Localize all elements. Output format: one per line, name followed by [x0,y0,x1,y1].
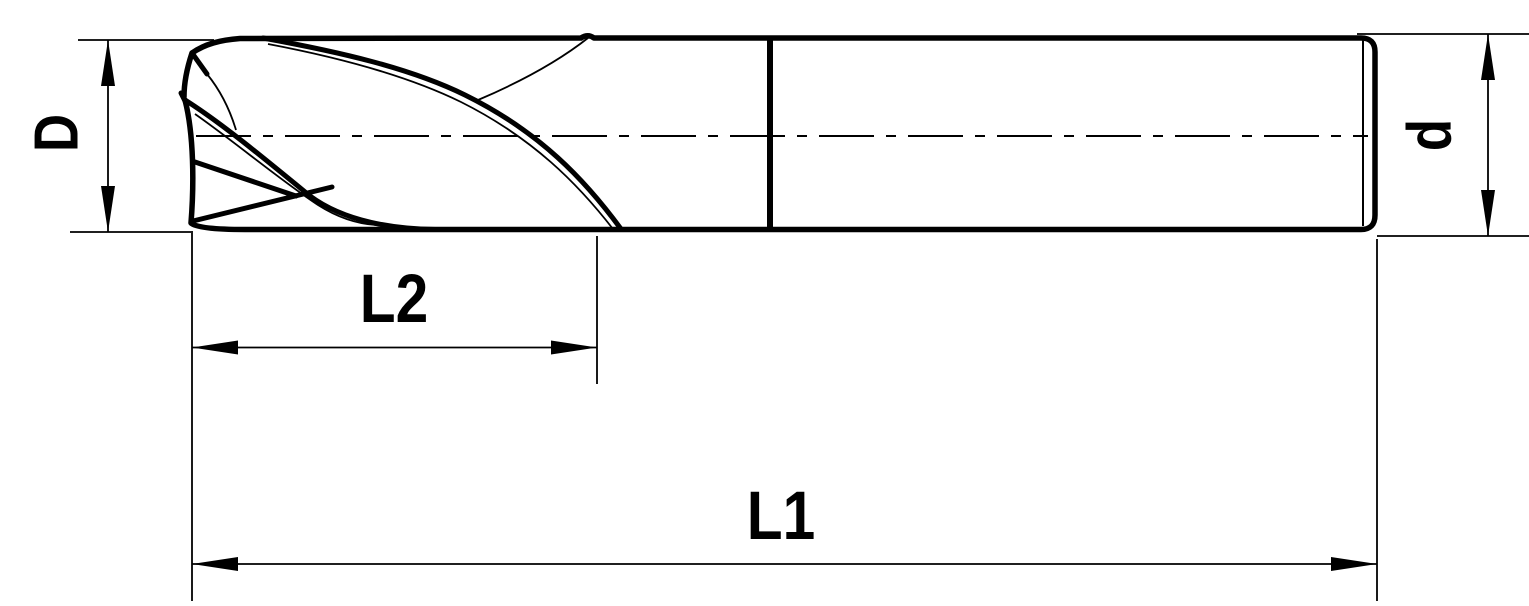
arrowhead [192,341,238,355]
arrowhead [101,40,115,86]
arrowhead [551,341,597,355]
tooth-face-line [207,74,236,130]
tip-gash-line [192,53,207,74]
end-face-lower-edge [185,100,193,223]
flute2-edge [185,100,435,230]
arrowhead [1331,557,1377,571]
flute-runout-curve [478,38,588,100]
end-face-upper-edge [184,53,192,97]
end-mill-drawing: D d L2 L1 [0,0,1529,606]
shank-diameter-label: d [1396,119,1465,151]
dimension-L2: L2 [192,231,597,601]
arrowhead [192,557,238,571]
shank-outline [770,38,1375,230]
arrowhead [101,186,115,232]
shank [770,38,1375,230]
end-tooth-gash-lower [193,187,332,221]
flute-bottom-edge [191,223,770,230]
tool-body [181,36,1375,233]
cutter-diameter-label: D [23,114,92,152]
technical-drawing-canvas: D d L2 L1 [0,0,1529,606]
flute-length-label: L2 [360,260,428,338]
overall-length-label: L1 [747,477,815,555]
arrowhead [1481,34,1495,80]
dimension-d: d [1357,34,1529,236]
flute-section [181,36,770,230]
flute-top-edge [192,36,770,53]
arrowhead [1481,190,1495,236]
